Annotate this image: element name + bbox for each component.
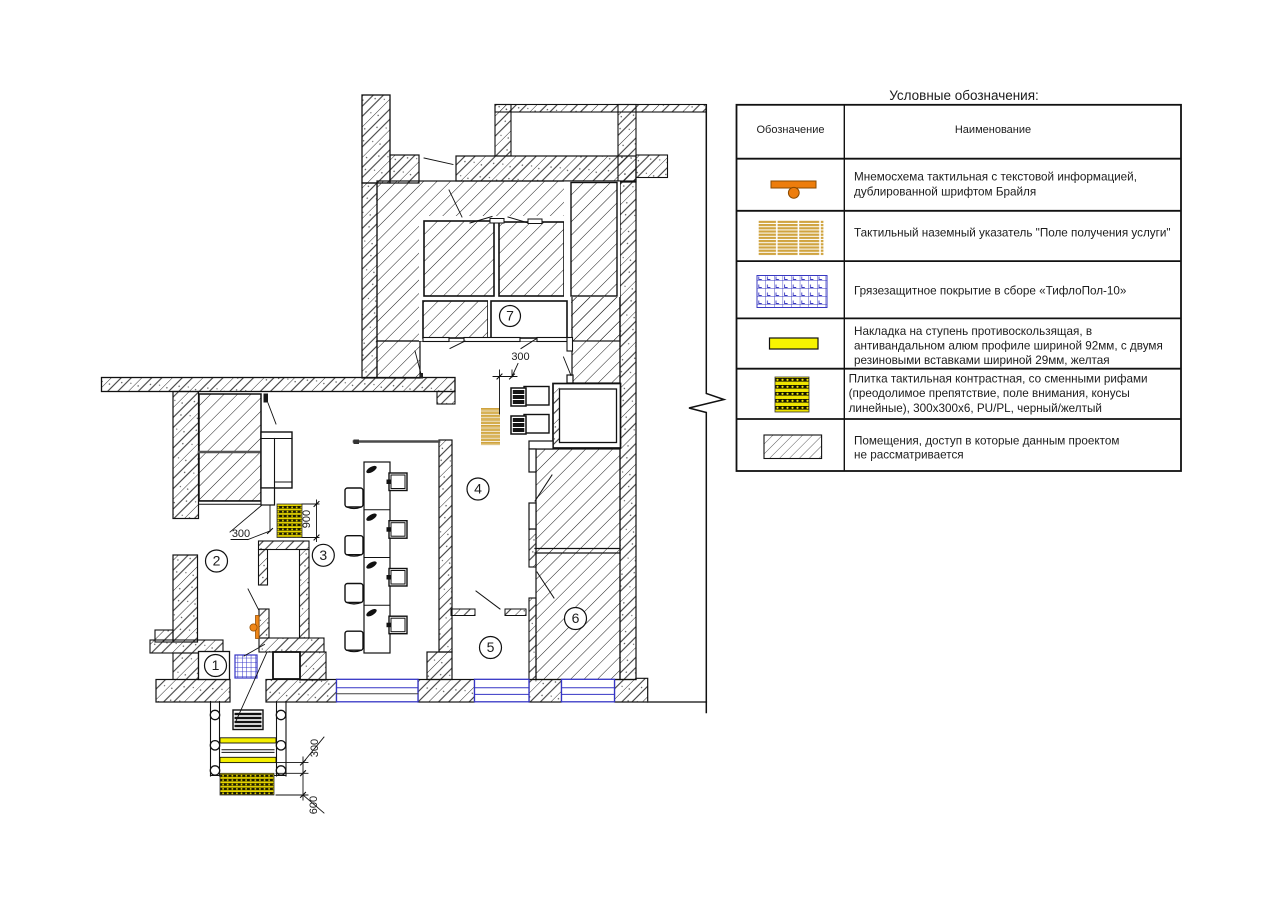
svg-text:Плитка тактильная контрастная,: Плитка тактильная контрастная, со сменны…	[849, 373, 1148, 386]
svg-text:Тактильный наземный указатель: Тактильный наземный указатель "Поле полу…	[854, 226, 1171, 239]
svg-text:600: 600	[308, 796, 320, 814]
svg-text:3: 3	[319, 547, 327, 563]
svg-text:5: 5	[487, 639, 495, 655]
svg-text:300: 300	[309, 739, 321, 757]
svg-text:Мнемосхема тактильная с тексто: Мнемосхема тактильная с текстовой информ…	[854, 171, 1137, 184]
svg-text:дублированной шрифтом Брайля: дублированной шрифтом Брайля	[854, 186, 1036, 199]
svg-text:резиновыми вставками шириной 2: резиновыми вставками шириной 29мм, желта…	[854, 354, 1110, 367]
svg-text:Условные обозначения:: Условные обозначения:	[889, 88, 1039, 103]
svg-text:антивандальном алюм профиле ши: антивандальном алюм профиле шириной 92мм…	[854, 339, 1163, 352]
svg-text:1: 1	[212, 657, 220, 673]
svg-text:4: 4	[474, 481, 482, 497]
svg-text:не рассматривается: не рассматривается	[854, 449, 964, 462]
svg-text:Накладка на ступень противоско: Накладка на ступень противоскользящая, в	[854, 325, 1092, 338]
svg-text:Обозначение: Обозначение	[756, 124, 824, 136]
svg-text:300: 300	[511, 351, 529, 363]
svg-text:линейные), 300x300x6, PU/PL, ч: линейные), 300x300x6, PU/PL, черный/желт…	[849, 402, 1102, 415]
svg-text:7: 7	[506, 308, 514, 324]
svg-text:300: 300	[232, 528, 250, 540]
svg-text:Наименование: Наименование	[955, 124, 1031, 136]
svg-text:Помещения, доступ в которые да: Помещения, доступ в которые данным проек…	[854, 435, 1119, 448]
svg-text:900: 900	[301, 510, 313, 528]
svg-text:6: 6	[572, 610, 580, 626]
svg-text:Грязезащитное покрытие в сборе: Грязезащитное покрытие в сборе «ТифлоПол…	[854, 285, 1127, 298]
svg-text:(преодолимое препятствие, поле: (преодолимое препятствие, поле внимания,…	[849, 387, 1130, 400]
svg-text:2: 2	[213, 553, 221, 569]
